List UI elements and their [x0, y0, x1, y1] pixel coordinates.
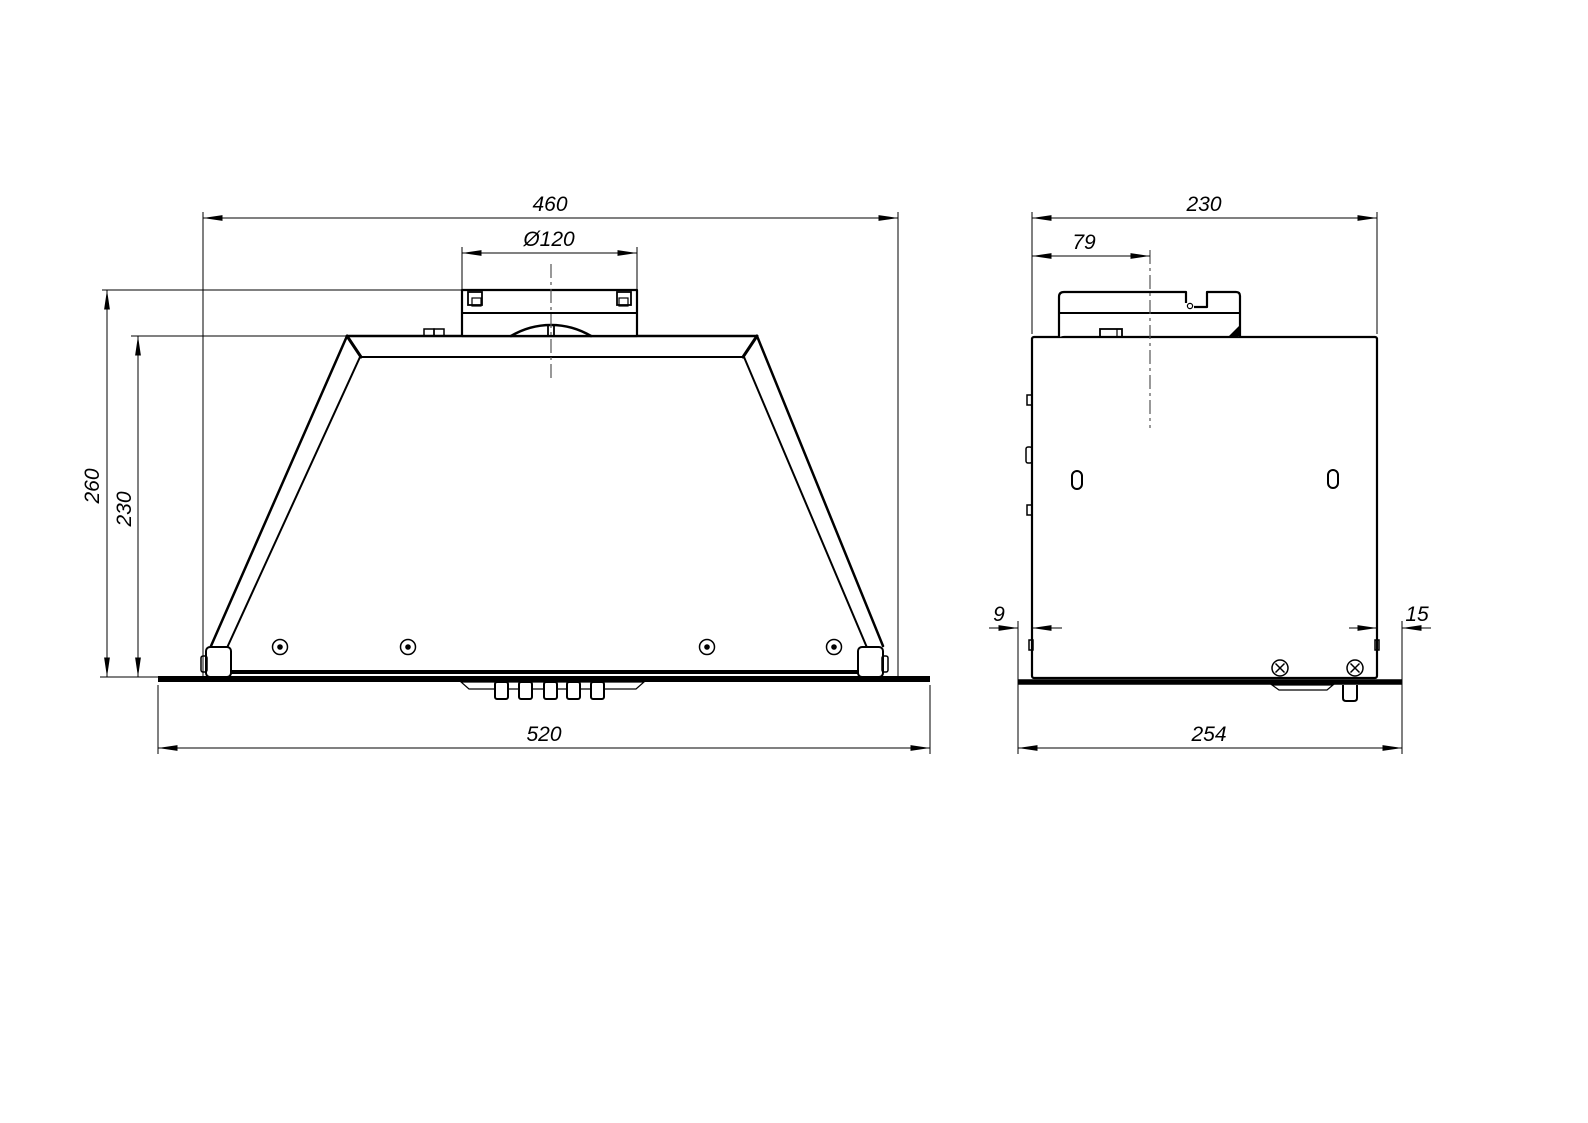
dim-label-panel-width: 520	[526, 723, 561, 746]
control-button	[544, 682, 557, 699]
dim-body-height: 230	[113, 336, 346, 677]
control-button	[495, 682, 508, 699]
front-duct-collar	[424, 264, 637, 378]
dim-label-rear-overhang: 9	[993, 603, 1005, 626]
side-view: 230 79 9 15 254	[989, 193, 1431, 754]
hood-right-corner-fold	[743, 336, 757, 357]
front-view: 460 Ø120 260 230	[81, 193, 930, 754]
front-bottom-panel	[158, 679, 930, 699]
dim-label-duct-center-offset: 79	[1072, 231, 1096, 254]
control-button	[519, 682, 532, 699]
side-filter-edge	[1272, 685, 1333, 690]
screw	[827, 640, 842, 655]
control-button	[567, 682, 580, 699]
front-hood-canopy	[201, 336, 888, 677]
control-button	[591, 682, 604, 699]
drawing-sheet: 460 Ø120 260 230	[0, 0, 1588, 1123]
side-terminal-block	[1100, 329, 1122, 337]
side-panel-tab	[1343, 685, 1357, 701]
hood-left-foot	[206, 647, 231, 677]
dim-label-side-body-depth: 230	[1185, 193, 1221, 216]
side-edge-tab	[1027, 395, 1032, 405]
screw	[401, 640, 416, 655]
dim-panel-depth: 254	[1018, 723, 1402, 748]
hood-right-foot	[858, 647, 883, 677]
hood-right-slant-inner	[744, 357, 868, 650]
side-bottom-panel	[1018, 682, 1402, 701]
hood-left-slant-outer	[211, 336, 347, 646]
screw	[273, 640, 288, 655]
hood-right-slant-outer	[757, 336, 883, 646]
side-body	[1026, 337, 1379, 678]
technical-drawing: 460 Ø120 260 230	[0, 0, 1588, 1123]
dim-label-body-height: 230	[113, 491, 136, 527]
dim-label-front-overhang: 15	[1405, 603, 1429, 626]
dim-label-duct-diameter: Ø120	[522, 228, 575, 251]
dim-label-total-height: 260	[81, 468, 104, 504]
screw	[700, 640, 715, 655]
control-buttons	[495, 682, 604, 699]
dim-duct-center-offset: 79	[1032, 231, 1150, 256]
dim-duct-diameter: Ø120	[462, 228, 637, 289]
hood-left-corner-fold	[347, 336, 361, 357]
dim-label-panel-depth: 254	[1190, 723, 1226, 746]
side-edge-tab	[1027, 505, 1032, 515]
dim-label-front-body-width: 460	[532, 193, 567, 216]
front-panel-screws	[273, 640, 842, 655]
hood-left-slant-inner	[226, 357, 360, 650]
side-body-box	[1032, 337, 1377, 678]
side-duct-clip-detail	[1187, 303, 1192, 308]
